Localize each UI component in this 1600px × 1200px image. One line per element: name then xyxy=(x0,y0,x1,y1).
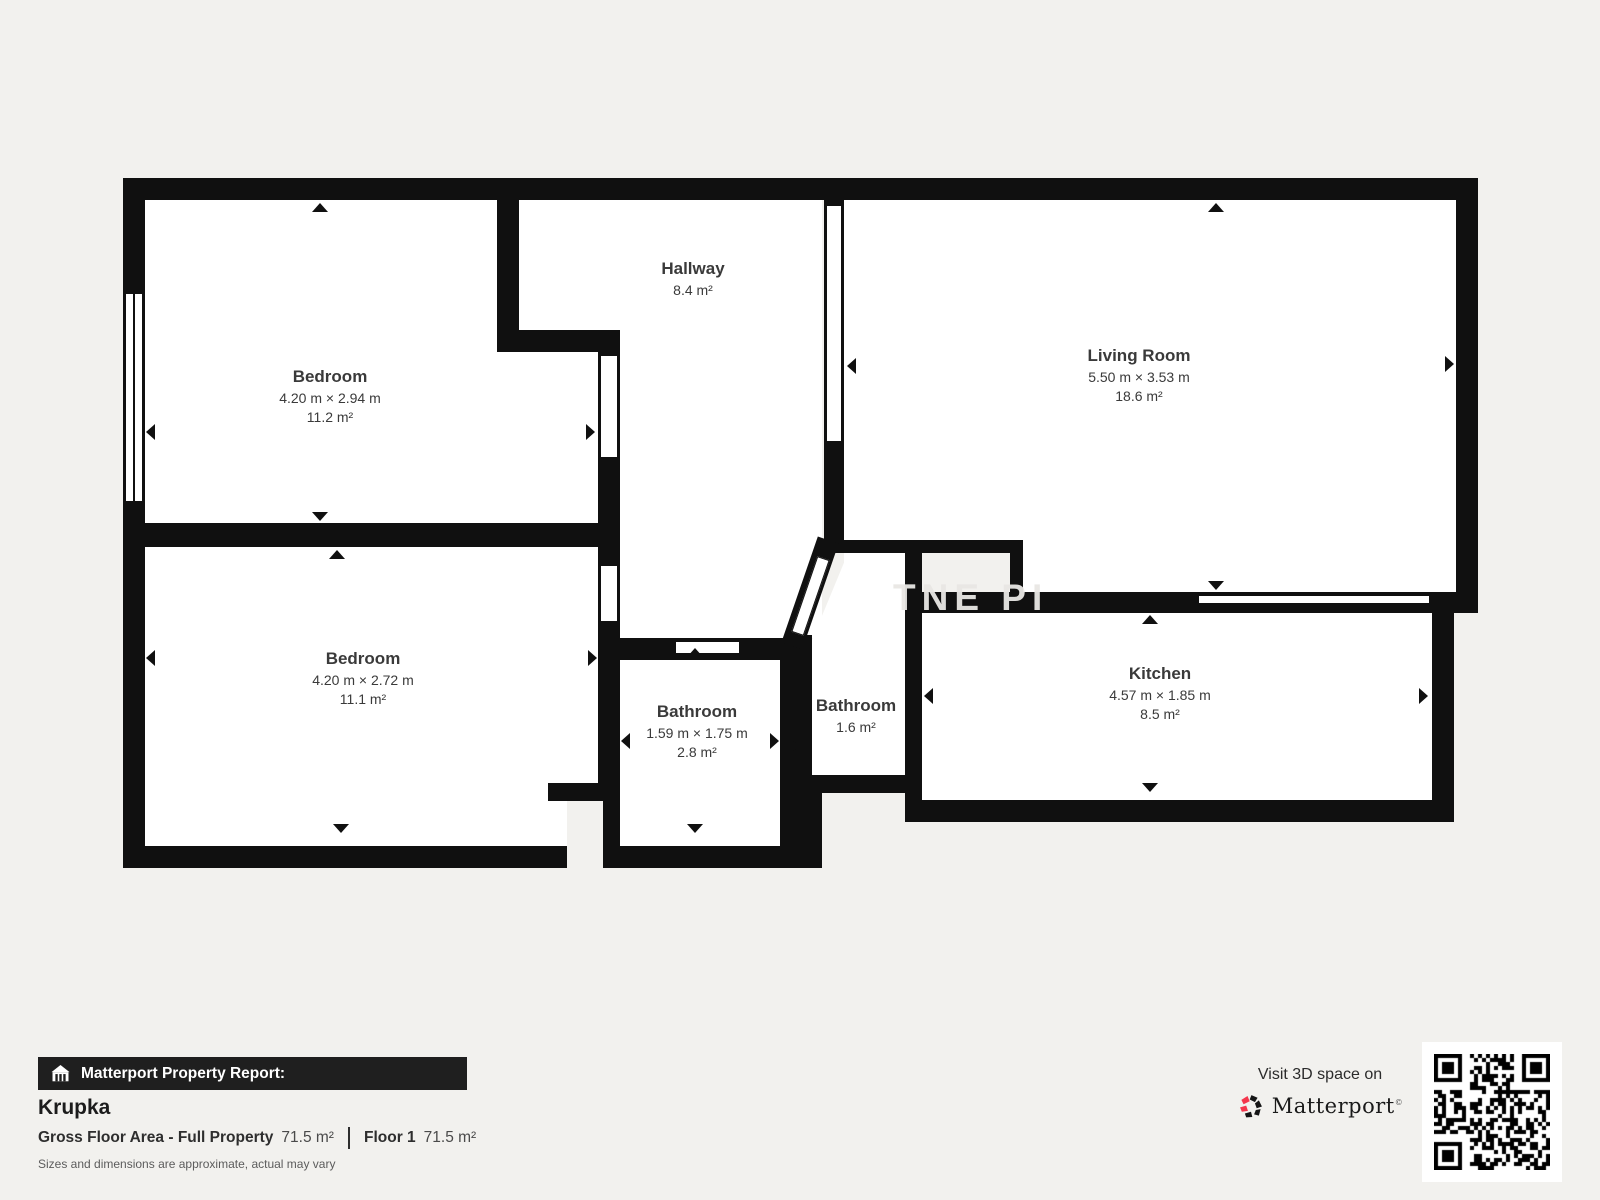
marker-living-bottom xyxy=(1208,581,1224,590)
door-bathroom-1 xyxy=(675,641,740,654)
wall-bedroom-divider xyxy=(123,523,620,547)
exterior-notch-bedroom2 xyxy=(567,801,603,868)
matterport-logo: Matterport© xyxy=(1240,1092,1400,1120)
marker-kitchen-right xyxy=(1419,688,1428,704)
visit-3d-text: Visit 3D space on xyxy=(1240,1066,1400,1084)
room-bathroom-2 xyxy=(812,553,905,775)
wall-bath2-top xyxy=(844,540,1023,553)
label-bedroom-1: Bedroom 4.20 m × 2.94 m 11.2 m² xyxy=(279,368,381,425)
marker-bed1-bottom xyxy=(312,512,328,521)
room-area: 8.5 m² xyxy=(1109,707,1211,722)
gross-floor-area-value: 71.5 m² xyxy=(281,1129,334,1147)
marker-bath1-right xyxy=(770,733,779,749)
room-area: 11.2 m² xyxy=(279,410,381,425)
qr-code[interactable] xyxy=(1422,1042,1562,1182)
marker-bath1-left xyxy=(621,733,630,749)
room-name: Bathroom xyxy=(816,697,896,716)
room-area: 11.1 m² xyxy=(312,692,414,707)
floor-area-metrics: Gross Floor Area - Full Property 71.5 m²… xyxy=(38,1127,476,1149)
floor-plan: Bedroom 4.20 m × 2.94 m 11.2 m² Bedroom … xyxy=(0,0,1600,1200)
label-kitchen: Kitchen 4.57 m × 1.85 m 8.5 m² xyxy=(1109,665,1211,722)
marker-bed2-right xyxy=(588,650,597,666)
marker-kitchen-bottom xyxy=(1142,783,1158,792)
wall-below-bath2 xyxy=(800,775,822,868)
label-living-room: Living Room 5.50 m × 3.53 m 18.6 m² xyxy=(1088,347,1191,404)
wall-right-living xyxy=(1456,178,1478,608)
opening-hallway-living xyxy=(826,205,842,442)
house-icon xyxy=(51,1064,70,1083)
room-area: 18.6 m² xyxy=(1088,389,1191,404)
room-bedroom-1 xyxy=(145,200,497,523)
room-dimensions: 1.59 m × 1.75 m xyxy=(646,726,748,741)
matterport-pinwheel-icon xyxy=(1237,1092,1265,1120)
label-bathroom-1: Bathroom 1.59 m × 1.75 m 2.8 m² xyxy=(646,703,748,760)
report-banner-text: Matterport Property Report: xyxy=(81,1065,285,1083)
door-bedroom-1 xyxy=(600,355,618,458)
trademark-symbol: © xyxy=(1395,1098,1404,1107)
marker-bed1-right xyxy=(586,424,595,440)
wall-bed2-notch-top xyxy=(548,783,620,801)
room-dimensions: 4.57 m × 1.85 m xyxy=(1109,688,1211,703)
marker-kitchen-left xyxy=(924,688,933,704)
floor-value: 71.5 m² xyxy=(424,1129,477,1147)
marker-bed2-left xyxy=(146,650,155,666)
label-bedroom-2: Bedroom 4.20 m × 2.72 m 11.1 m² xyxy=(312,650,414,707)
room-bedroom-1-extension xyxy=(497,352,598,523)
label-bathroom-2: Bathroom 1.6 m² xyxy=(816,697,896,735)
marker-kitchen-top xyxy=(1142,615,1158,624)
marker-bed2-bottom xyxy=(333,824,349,833)
marker-bed2-top xyxy=(329,550,345,559)
marker-bath2-left xyxy=(790,738,799,754)
qr-canvas xyxy=(1434,1054,1550,1170)
wall-kitchen-bottom xyxy=(905,800,1454,822)
label-hallway: Hallway 8.4 m² xyxy=(661,260,724,298)
matterport-promo[interactable]: Visit 3D space on Matterport© xyxy=(1240,1066,1400,1120)
floor-label: Floor 1 xyxy=(364,1129,416,1147)
marker-bed1-top xyxy=(312,203,328,212)
marker-living-right xyxy=(1445,356,1454,372)
room-area: 2.8 m² xyxy=(646,745,748,760)
wall-top xyxy=(123,178,1478,200)
room-name: Bedroom xyxy=(279,368,381,387)
marker-living-top xyxy=(1208,203,1224,212)
wall-bath1-bottom xyxy=(598,846,822,868)
room-area: 8.4 m² xyxy=(661,283,724,298)
room-name: Hallway xyxy=(661,260,724,279)
property-name: Krupka xyxy=(38,1096,110,1120)
matterport-wordmark: Matterport© xyxy=(1272,1094,1403,1118)
window-mullion xyxy=(133,294,135,501)
marker-bath1-top xyxy=(687,648,703,657)
opening-living-kitchen xyxy=(1198,595,1430,604)
metrics-divider xyxy=(348,1127,350,1149)
wall-bottom-left xyxy=(123,846,620,868)
marker-living-left xyxy=(847,358,856,374)
room-name: Bedroom xyxy=(312,650,414,669)
disclaimer-text: Sizes and dimensions are approximate, ac… xyxy=(38,1157,335,1171)
door-bedroom-2 xyxy=(600,565,618,622)
report-banner: Matterport Property Report: xyxy=(38,1057,467,1090)
room-dimensions: 4.20 m × 2.72 m xyxy=(312,673,414,688)
marker-bath1-bottom xyxy=(687,824,703,833)
room-area: 1.6 m² xyxy=(816,720,896,735)
room-dimensions: 5.50 m × 3.53 m xyxy=(1088,370,1191,385)
room-dimensions: 4.20 m × 2.94 m xyxy=(279,391,381,406)
gross-floor-area-label: Gross Floor Area - Full Property xyxy=(38,1129,273,1147)
page: { "plan": { "watermark": "TNE PI", "room… xyxy=(0,0,1600,1200)
room-name: Bathroom xyxy=(646,703,748,722)
watermark: TNE PI xyxy=(893,577,1048,619)
marker-bed1-left xyxy=(146,424,155,440)
room-name: Living Room xyxy=(1088,347,1191,366)
wall-kitchen-right xyxy=(1432,592,1454,822)
wall-bath2-left xyxy=(792,635,812,775)
room-name: Kitchen xyxy=(1109,665,1211,684)
